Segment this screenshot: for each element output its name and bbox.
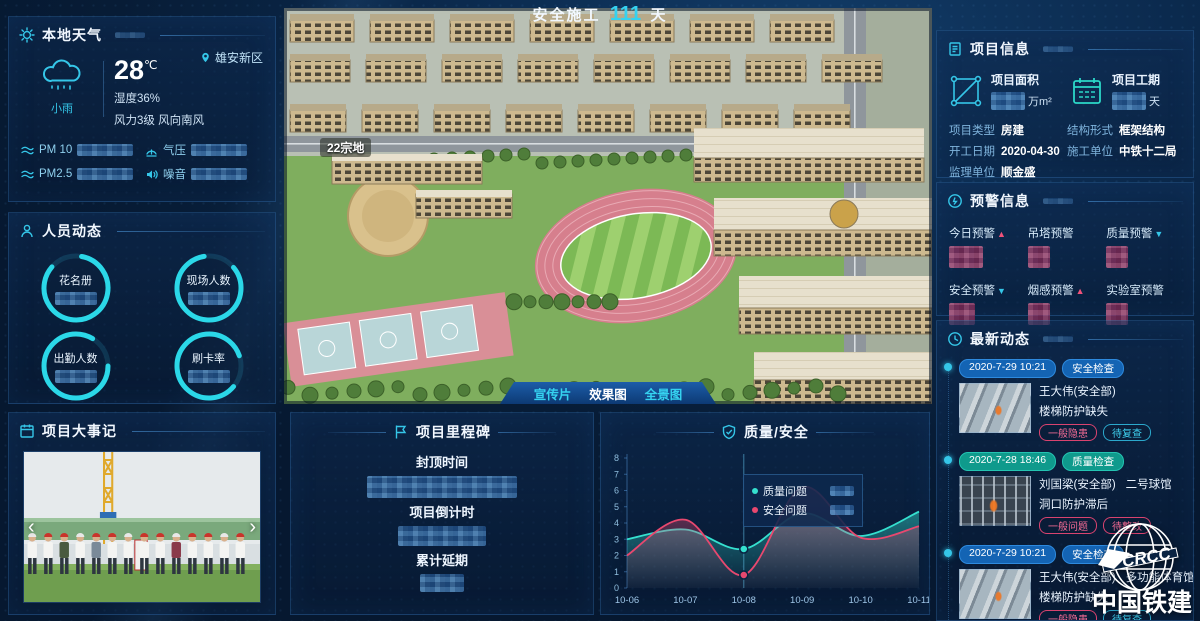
entry-photo[interactable] [959, 569, 1031, 619]
divider [103, 61, 104, 117]
personnel-stat-ring[interactable]: 刷卡率 [172, 329, 246, 403]
safety-series-label: 安全问题 [763, 502, 807, 518]
feed-entry[interactable]: 2020-7-29 10:21 安全检查 王大伟(安全部) 楼梯防护缺失 一般隐… [959, 359, 1193, 441]
svg-text:10-07: 10-07 [673, 595, 697, 606]
promo-video-button[interactable]: 宣传片 [534, 384, 572, 403]
project-duration-stat: 项目工期 天 [1070, 71, 1181, 110]
project-info-panel: 项目信息 项目面积 万m² 项目工期 天 项目类型房建 结构形式框架结构 开工日… [936, 30, 1194, 178]
weather-condition: 小雨 [23, 100, 101, 116]
metric-pm10: PM 10 [21, 142, 139, 158]
group-photo [24, 452, 260, 602]
status-badge: 待复查 [1103, 424, 1151, 441]
site-render-view[interactable]: 22宗地 宣传片 效果图 全景图 [284, 8, 932, 404]
safety-series-dot [752, 507, 758, 513]
person-icon [19, 223, 35, 239]
trend-down-icon: ▼ [1154, 229, 1163, 239]
aerial-render [284, 8, 932, 404]
personnel-stat-ring[interactable]: 现场人数 [172, 251, 246, 325]
trend-up-icon: ▲ [997, 229, 1006, 239]
quality-safety-chart[interactable]: 01234567810-0610-0710-0810-0910-1010-11 [601, 448, 929, 608]
safe-construction-label: 安全施工 [532, 7, 600, 24]
panorama-button[interactable]: 全景图 [645, 384, 683, 403]
page-header: 安全施工 111 天 [0, 3, 1200, 26]
personnel-stat-ring[interactable]: 花名册 [39, 251, 113, 325]
pm-icon [21, 144, 34, 157]
alert-value-redacted [1106, 246, 1128, 268]
area-icon [949, 74, 983, 108]
timeline-dot [944, 549, 952, 557]
field-supervisor: 监理单位顺金盛 [949, 164, 1063, 180]
noise-value-redacted [191, 168, 247, 180]
crcc-brand: 中国铁建 [1092, 588, 1192, 617]
safety-value-redacted [830, 505, 854, 515]
feed-title: 最新动态 [970, 329, 1030, 349]
svg-text:5: 5 [614, 502, 619, 512]
entry-issue: 洞口防护滞后 [1039, 496, 1172, 512]
land-parcel-label: 22宗地 [320, 138, 371, 157]
svg-text:2: 2 [614, 551, 619, 561]
alerts-title: 预警信息 [970, 191, 1030, 211]
status-badge: 一般隐患 [1039, 424, 1097, 441]
entry-timestamp: 2020-7-28 18:46 [959, 452, 1056, 471]
trend-down-icon: ▼ [997, 286, 1006, 296]
delay-redacted [420, 574, 464, 592]
countdown-redacted [398, 526, 486, 546]
events-panel: 项目大事记 [8, 412, 276, 615]
pm25-value-redacted [77, 168, 133, 180]
field-start-date: 开工日期2020-04-30 [949, 143, 1063, 159]
personnel-title: 人员动态 [42, 221, 102, 241]
entry-photo[interactable] [959, 383, 1031, 433]
header-deco-redacted [115, 32, 145, 38]
svg-text:7: 7 [614, 469, 619, 479]
clock-icon [947, 331, 963, 347]
personnel-stat-value-redacted [188, 292, 230, 305]
entry-photo[interactable] [959, 476, 1031, 526]
field-contractor: 施工单位中铁十二局 [1067, 143, 1181, 159]
safe-days-count: 111 [610, 3, 641, 25]
field-structure: 结构形式框架结构 [1067, 122, 1181, 138]
personnel-stat-label: 刷卡率 [192, 350, 225, 366]
svg-text:1: 1 [614, 567, 619, 577]
alert-item[interactable]: 实验室预警 [1106, 282, 1181, 325]
personnel-stat-label: 花名册 [59, 272, 92, 288]
speaker-icon [145, 168, 158, 181]
crcc-logo: CRCC 中国铁建 [1078, 515, 1198, 619]
temperature: 28℃ [114, 57, 204, 84]
project-duration-redacted [1112, 92, 1146, 110]
entry-place: 二号球馆 [1126, 476, 1172, 492]
humidity: 湿度36% [114, 90, 204, 106]
alert-value-redacted [1028, 246, 1050, 268]
milestone-delay: 累计延期 [416, 550, 468, 592]
pm-icon [21, 168, 34, 181]
header-deco-redacted [1043, 336, 1073, 342]
calendar-icon [1070, 74, 1104, 108]
flag-icon [393, 424, 409, 440]
quality-safety-panel: 质量/安全 01234567810-0610-0710-0810-0910-10… [600, 412, 930, 615]
personnel-panel: 人员动态 花名册 现场人数 出勤人数 [8, 212, 276, 404]
location-pin-icon [200, 52, 211, 63]
alert-item[interactable]: 质量预警▼ [1106, 225, 1181, 268]
carousel-prev-icon[interactable]: ‹ [28, 517, 35, 537]
events-title: 项目大事记 [42, 421, 117, 441]
personnel-stat-ring[interactable]: 出勤人数 [39, 329, 113, 403]
project-area-stat: 项目面积 万m² [949, 71, 1060, 110]
metric-noise: 噪音 [145, 166, 263, 182]
svg-text:6: 6 [614, 486, 619, 496]
alert-item[interactable]: 今日预警▲ [949, 225, 1024, 268]
entry-tag: 安全检查 [1062, 359, 1124, 378]
alert-item[interactable]: 吊塔预警 [1028, 225, 1103, 268]
quality-safety-title: 质量/安全 [744, 422, 809, 442]
alert-label: 质量预警▼ [1106, 225, 1181, 241]
document-icon [947, 41, 963, 57]
carousel-next-icon[interactable]: › [249, 517, 256, 537]
alert-label: 今日预警▲ [949, 225, 1024, 241]
alert-item[interactable]: 安全预警▼ [949, 282, 1024, 325]
entry-person: 王大伟(安全部) [1039, 383, 1116, 399]
alert-label: 烟感预警▲ [1028, 282, 1103, 298]
alarm-bell-icon [947, 193, 963, 209]
personnel-stat-label: 出勤人数 [54, 350, 98, 366]
svg-text:4: 4 [614, 518, 619, 528]
sun-icon [19, 27, 35, 43]
rain-cloud-icon [39, 57, 85, 93]
milestone-countdown: 项目倒计时 [398, 502, 486, 546]
metric-pm25: PM2.5 [21, 166, 139, 182]
svg-text:10-08: 10-08 [732, 595, 756, 606]
svg-text:10-09: 10-09 [790, 595, 814, 606]
shield-check-icon [721, 424, 737, 440]
alert-label: 吊塔预警 [1028, 225, 1103, 241]
weather-panel: 本地天气 雄安新区 小雨 28℃ 湿度36% 风力3级 风向南风 PM [8, 16, 276, 202]
alert-item[interactable]: 烟感预警▲ [1028, 282, 1103, 325]
location-label: 雄安新区 [215, 49, 263, 66]
metric-pressure: 气压 [145, 142, 263, 158]
weather-title: 本地天气 [42, 25, 102, 45]
chart-tooltip: 质量问题 安全问题 [743, 474, 863, 527]
header-deco-redacted [1043, 46, 1073, 52]
wind: 风力3级 风向南风 [114, 112, 204, 128]
location[interactable]: 雄安新区 [200, 49, 263, 66]
entry-issue: 楼梯防护缺失 [1039, 403, 1151, 419]
trend-up-icon: ▲ [1076, 286, 1085, 296]
milestone-panel: 项目里程碑 封顶时间 项目倒计时 累计延期 [290, 412, 594, 615]
personnel-stat-value-redacted [188, 370, 230, 383]
quality-series-label: 质量问题 [763, 483, 807, 499]
personnel-stat-value-redacted [55, 292, 97, 305]
project-area-redacted [991, 92, 1025, 110]
timeline-dot [944, 363, 952, 371]
svg-text:8: 8 [614, 453, 619, 463]
svg-text:3: 3 [614, 534, 619, 544]
render-view-button[interactable]: 效果图 [589, 384, 627, 403]
events-photo-carousel[interactable]: ‹ › [23, 451, 261, 603]
field-project-type: 项目类型房建 [949, 122, 1063, 138]
days-unit: 天 [651, 7, 668, 24]
svg-text:0: 0 [614, 583, 619, 593]
alert-value-redacted [949, 246, 983, 268]
milestone-topping-date: 封顶时间 [367, 452, 517, 498]
entry-tag: 质量检查 [1062, 452, 1124, 471]
entry-timestamp: 2020-7-29 10:21 [959, 545, 1056, 564]
entry-timestamp: 2020-7-29 10:21 [959, 359, 1056, 378]
entry-person: 刘国梁(安全部) [1039, 476, 1116, 492]
project-info-title: 项目信息 [970, 39, 1030, 59]
alert-label: 实验室预警 [1106, 282, 1181, 298]
quality-series-dot [752, 488, 758, 494]
milestone-title: 项目里程碑 [416, 422, 491, 442]
personnel-stat-value-redacted [55, 370, 97, 383]
svg-text:10-10: 10-10 [848, 595, 872, 606]
pressure-value-redacted [191, 144, 247, 156]
calendar-icon [19, 423, 35, 439]
svg-text:10-11: 10-11 [907, 595, 929, 606]
timeline-dot [944, 456, 952, 464]
alert-label: 安全预警▼ [949, 282, 1024, 298]
alerts-panel: 预警信息 今日预警▲ 吊塔预警 质量预警▼ 安全预警▼ 烟感预警▲ 实验室预警 [936, 182, 1194, 316]
scene-view-switcher: 宣传片 效果图 全景图 [500, 382, 716, 404]
header-deco-redacted [1043, 198, 1073, 204]
quality-value-redacted [830, 486, 854, 496]
svg-text:10-06: 10-06 [615, 595, 639, 606]
topping-date-redacted [367, 476, 517, 498]
pm10-value-redacted [77, 144, 133, 156]
personnel-stat-label: 现场人数 [187, 272, 231, 288]
pressure-gauge-icon [145, 144, 158, 157]
